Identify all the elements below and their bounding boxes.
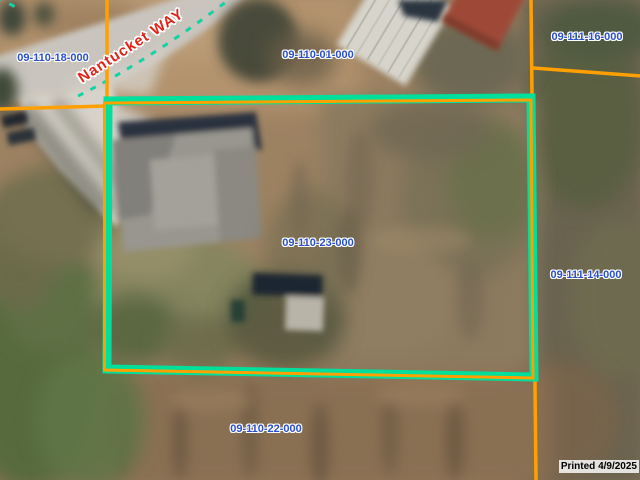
parcel-boundary-lines <box>0 0 640 480</box>
parcel-overlay <box>0 0 640 480</box>
selected-parcel-highlight <box>105 98 535 378</box>
road-centerline-dashes <box>0 0 236 96</box>
gis-map-canvas[interactable]: 09-110-18-000 09-110-01-000 09-111-16-00… <box>0 0 640 480</box>
